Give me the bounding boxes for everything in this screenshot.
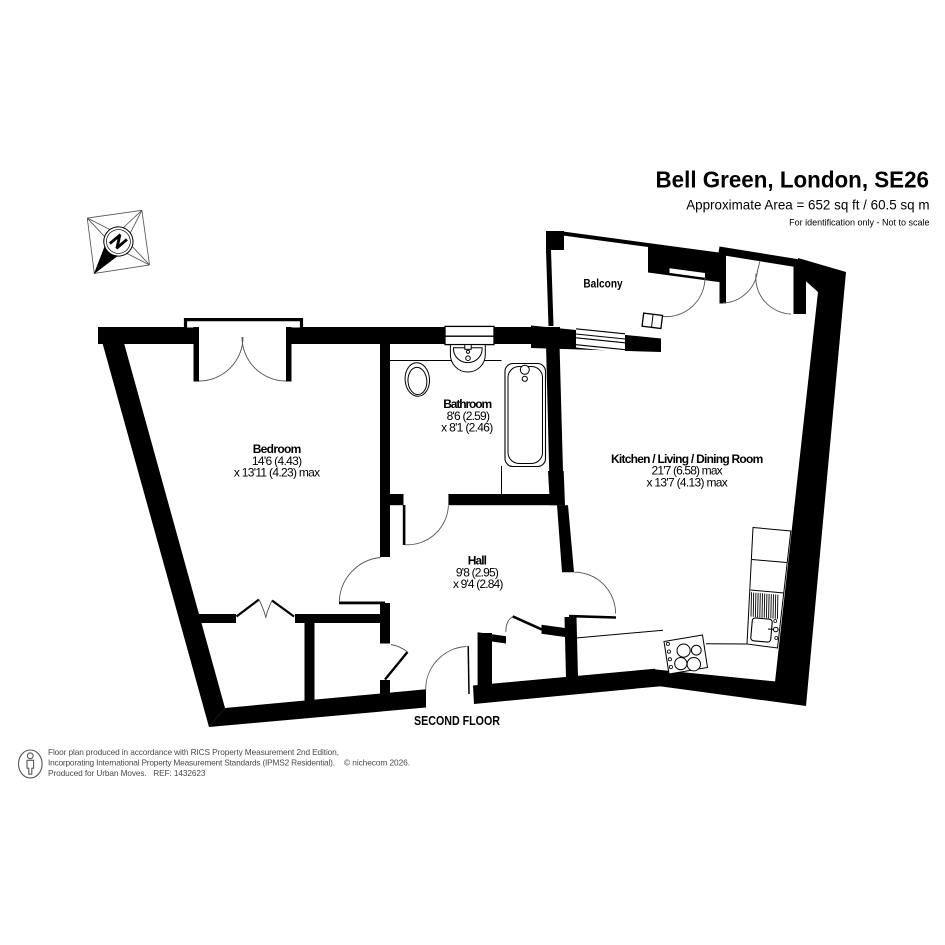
svg-text:Incorporating International Pr: Incorporating International Property Mea…	[48, 758, 335, 768]
svg-text:Floor plan produced in accorda: Floor plan produced in accordance with R…	[48, 747, 339, 757]
svg-text:Produced for Urban Moves. RE: Produced for Urban Moves. REF: 1432623	[48, 768, 206, 778]
svg-text:x 9'4 (2.84): x 9'4 (2.84)	[453, 577, 503, 591]
svg-text:© nichecom 2026.: © nichecom 2026.	[344, 758, 410, 768]
svg-text:x 8'1 (2.46): x 8'1 (2.46)	[441, 421, 493, 435]
svg-text:Bell Green, London, SE26: Bell Green, London, SE26	[656, 167, 930, 193]
svg-text:x 13'11 (4.23) max: x 13'11 (4.23) max	[234, 466, 320, 480]
svg-text:SECOND FLOOR: SECOND FLOOR	[414, 713, 500, 728]
svg-text:For identification only - Not: For identification only - Not to scale	[789, 216, 929, 227]
svg-text:Approximate Area = 652 sq ft /: Approximate Area = 652 sq ft / 60.5 sq m	[686, 198, 929, 213]
svg-text:Balcony: Balcony	[583, 276, 623, 290]
svg-text:x 13'7 (4.13) max: x 13'7 (4.13) max	[646, 475, 727, 489]
